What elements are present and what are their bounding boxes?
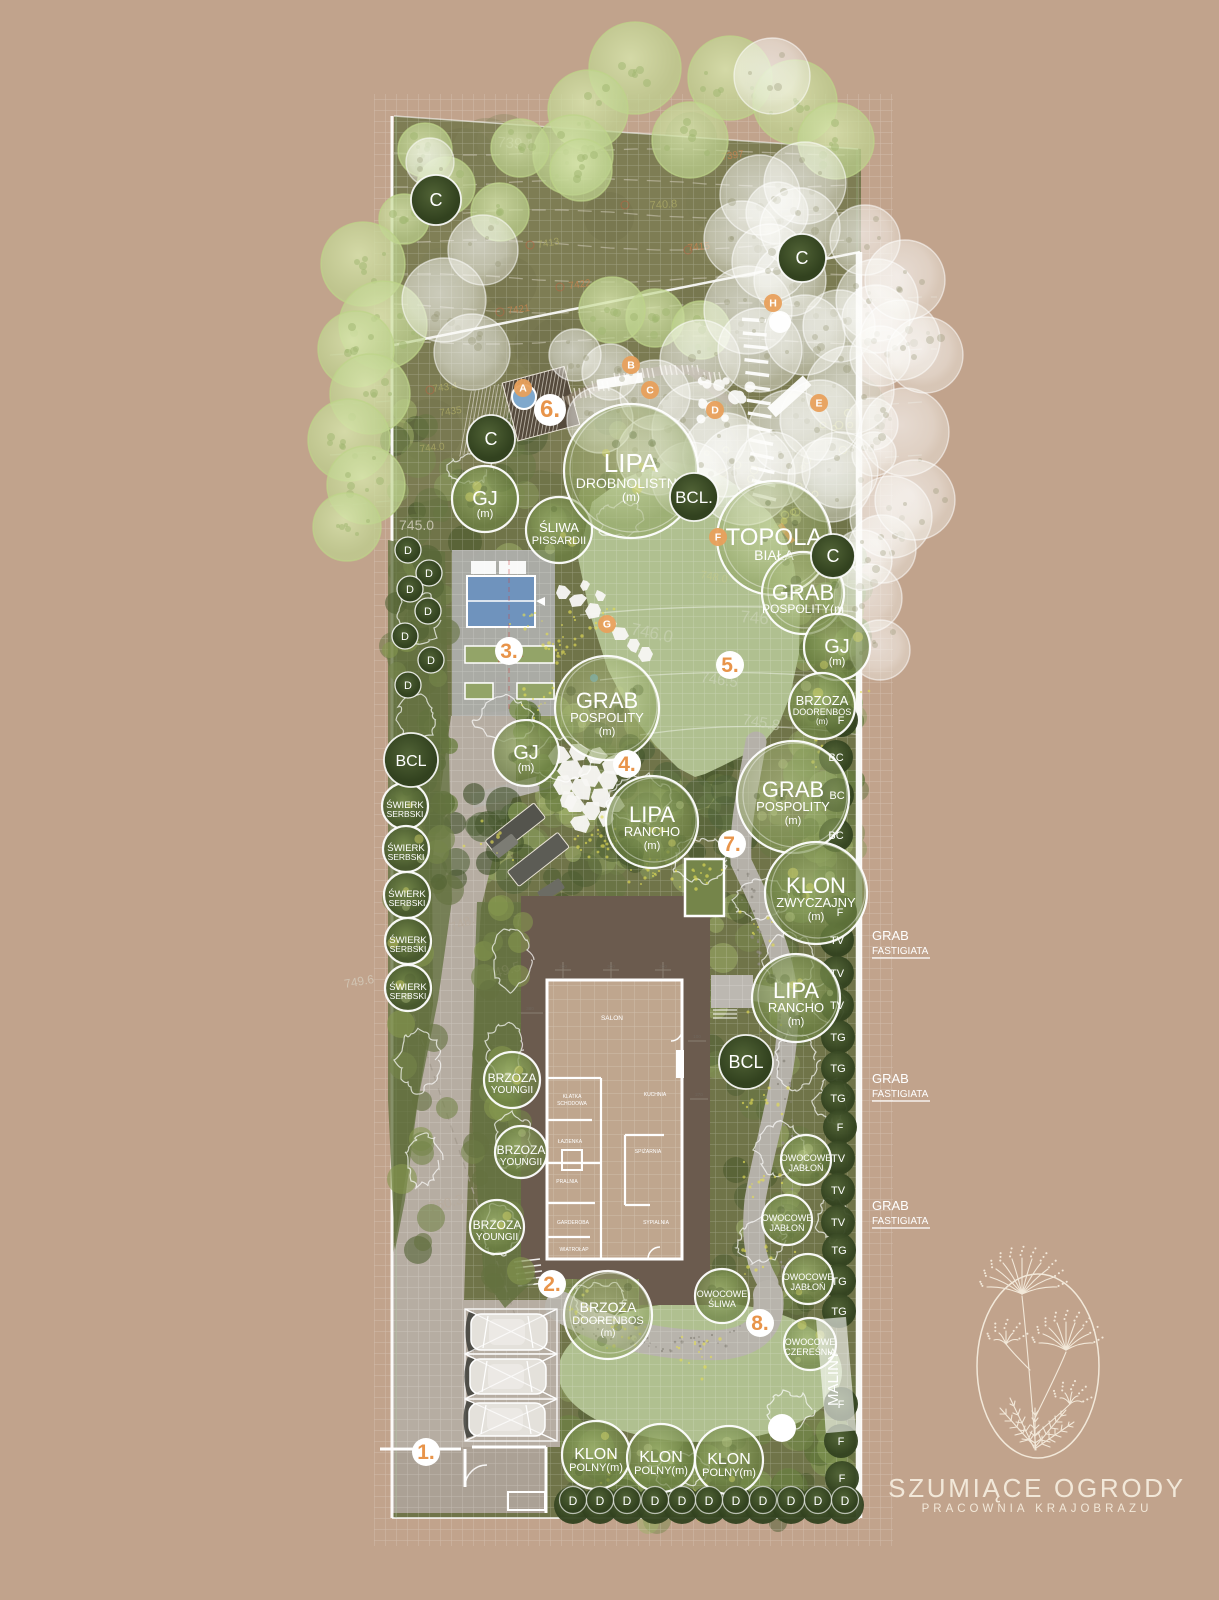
svg-text:TV: TV — [830, 968, 845, 980]
svg-text:GJ: GJ — [824, 636, 850, 658]
svg-text:PISSARDII: PISSARDII — [532, 535, 586, 547]
svg-text:(m): (m) — [518, 762, 535, 774]
svg-text:OWOCOWE: OWOCOWE — [762, 1213, 813, 1223]
svg-text:POLNY(m): POLNY(m) — [634, 1465, 688, 1477]
svg-text:D: D — [427, 655, 435, 667]
svg-text:KUCHNIA: KUCHNIA — [644, 1092, 667, 1098]
svg-text:8.: 8. — [751, 1312, 769, 1335]
svg-text:(m): (m) — [788, 1016, 805, 1028]
svg-text:GRAB: GRAB — [872, 928, 909, 943]
svg-text:F: F — [839, 1473, 846, 1485]
svg-text:7.: 7. — [723, 833, 741, 856]
svg-text:SERBSKI: SERBSKI — [387, 809, 424, 819]
svg-text:MALINY: MALINY — [825, 1350, 842, 1406]
svg-text:TG: TG — [831, 1245, 846, 1257]
svg-text:JABŁOŃ: JABŁOŃ — [769, 1223, 804, 1233]
svg-text:POSPOLITY: POSPOLITY — [756, 799, 830, 814]
svg-text:F: F — [837, 907, 844, 919]
svg-text:745.0: 745.0 — [399, 517, 434, 533]
svg-text:F: F — [837, 1122, 844, 1134]
svg-text:WIATROŁAP: WIATROŁAP — [559, 1247, 589, 1253]
svg-text:C: C — [430, 190, 443, 210]
svg-text:GRAB: GRAB — [872, 1198, 909, 1213]
svg-text:GJ: GJ — [472, 488, 498, 510]
svg-text:D: D — [705, 1494, 714, 1508]
svg-text:D: D — [401, 631, 409, 643]
svg-text:D: D — [841, 1494, 850, 1508]
svg-text:D: D — [732, 1494, 741, 1508]
svg-text:(m): (m) — [477, 508, 494, 520]
svg-text:BRZOZA: BRZOZA — [473, 1218, 522, 1232]
svg-text:YOUNGII: YOUNGII — [500, 1157, 542, 1168]
svg-text:TG: TG — [831, 1276, 846, 1288]
svg-text:BRZOZA: BRZOZA — [497, 1143, 546, 1157]
svg-text:270: 270 — [695, 1092, 703, 1097]
svg-text:C: C — [646, 385, 654, 397]
svg-text:D: D — [623, 1494, 632, 1508]
svg-text:GJ: GJ — [513, 742, 539, 764]
svg-text:POLNY(m): POLNY(m) — [702, 1467, 756, 1479]
svg-text:KLON: KLON — [707, 1451, 751, 1468]
svg-text:SERBSKI: SERBSKI — [390, 991, 427, 1001]
svg-text:D: D — [424, 606, 432, 618]
svg-text:(m): (m) — [816, 717, 828, 726]
svg-text:KLON: KLON — [574, 1446, 618, 1463]
svg-text:TV: TV — [830, 935, 845, 947]
svg-text:D: D — [425, 568, 433, 580]
svg-text:OWOCOWE: OWOCOWE — [783, 1272, 834, 1282]
svg-text:ŁAZIENKA: ŁAZIENKA — [558, 1139, 583, 1145]
svg-text:BC: BC — [829, 790, 844, 802]
svg-text:FASTIGIATA: FASTIGIATA — [872, 946, 929, 957]
svg-text:1.: 1. — [417, 1441, 435, 1464]
svg-text:(m): (m) — [599, 726, 616, 738]
svg-text:D: D — [759, 1494, 768, 1508]
svg-text:300: 300 — [659, 964, 667, 969]
svg-text:BCL: BCL — [395, 753, 426, 770]
svg-text:DROBNOLISTNA: DROBNOLISTNA — [576, 475, 687, 491]
svg-text:BRZOZA: BRZOZA — [580, 1299, 637, 1315]
svg-text:SZUMIĄCE OGRODY: SZUMIĄCE OGRODY — [888, 1473, 1186, 1503]
svg-text:OWOCOWE: OWOCOWE — [781, 1153, 832, 1163]
svg-text:SALON: SALON — [601, 1015, 623, 1022]
svg-text:300: 300 — [607, 964, 615, 969]
svg-text:SYPIALNIA: SYPIALNIA — [643, 1220, 670, 1226]
svg-text:(m): (m) — [644, 840, 661, 852]
svg-text:D: D — [814, 1494, 823, 1508]
svg-text:BCL.: BCL. — [675, 488, 713, 507]
svg-text:SERBSKI: SERBSKI — [388, 852, 425, 862]
svg-text:KLATKA: KLATKA — [563, 1094, 582, 1100]
svg-text:KLON: KLON — [639, 1449, 683, 1466]
svg-text:TG: TG — [830, 1063, 845, 1075]
svg-text:GRAB: GRAB — [872, 1071, 909, 1086]
svg-text:5.: 5. — [721, 654, 739, 677]
svg-text:FASTIGIATA: FASTIGIATA — [872, 1089, 929, 1100]
svg-text:TV: TV — [831, 1217, 846, 1229]
svg-text:TV: TV — [831, 1185, 846, 1197]
svg-text:TV: TV — [830, 1000, 845, 1012]
svg-text:BCL: BCL — [728, 1052, 763, 1072]
svg-text:(m): (m) — [622, 490, 640, 504]
svg-text:SERBSKI: SERBSKI — [389, 898, 426, 908]
svg-text:3.: 3. — [500, 640, 518, 663]
svg-text:740.8: 740.8 — [649, 198, 677, 212]
svg-text:YOUNGII: YOUNGII — [476, 1232, 518, 1243]
svg-text:RANCHO: RANCHO — [624, 824, 680, 839]
svg-text:C: C — [827, 546, 840, 566]
svg-text:ZWYCZAJNY: ZWYCZAJNY — [776, 895, 856, 910]
svg-text:6.: 6. — [540, 396, 560, 423]
svg-text:GARDEROBA: GARDEROBA — [557, 1220, 590, 1226]
svg-text:POSPOLITY: POSPOLITY — [570, 710, 644, 725]
svg-text:(m): (m) — [601, 1328, 616, 1339]
svg-text:JABŁOŃ: JABŁOŃ — [788, 1163, 823, 1173]
svg-text:TG: TG — [830, 1032, 845, 1044]
svg-text:D: D — [596, 1494, 605, 1508]
svg-text:JABŁOŃ: JABŁOŃ — [790, 1282, 825, 1292]
svg-text:ŚLIWA: ŚLIWA — [708, 1298, 736, 1309]
svg-text:C: C — [485, 429, 498, 449]
svg-text:D: D — [678, 1494, 687, 1508]
svg-text:D: D — [404, 680, 412, 692]
svg-text:SPIŻARNIA: SPIŻARNIA — [635, 1148, 662, 1155]
svg-text:BC: BC — [828, 830, 843, 842]
svg-text:(m): (m) — [808, 911, 825, 923]
svg-text:BRZOZA: BRZOZA — [796, 693, 849, 708]
svg-text:100: 100 — [693, 1034, 701, 1039]
svg-text:A: A — [519, 383, 527, 395]
svg-text:F: F — [715, 532, 722, 544]
svg-text:D: D — [787, 1494, 796, 1508]
svg-text:TV: TV — [831, 1153, 846, 1165]
svg-text:FASTIGIATA: FASTIGIATA — [872, 1216, 929, 1227]
svg-text:300: 300 — [559, 964, 567, 969]
svg-text:E: E — [815, 398, 822, 410]
svg-text:BRZOZA: BRZOZA — [488, 1071, 537, 1085]
svg-text:BC: BC — [828, 752, 843, 764]
svg-text:2.: 2. — [543, 1273, 561, 1296]
svg-text:(m): (m) — [829, 656, 846, 668]
svg-text:ŚLIWA: ŚLIWA — [539, 520, 579, 535]
svg-text:4.: 4. — [618, 753, 636, 776]
svg-text:(m): (m) — [785, 815, 802, 827]
svg-text:TG: TG — [830, 1093, 845, 1105]
svg-text:D: D — [651, 1494, 660, 1508]
svg-text:POLNY(m): POLNY(m) — [569, 1462, 623, 1474]
svg-text:OWOCOWE: OWOCOWE — [697, 1289, 748, 1299]
svg-text:G: G — [603, 619, 611, 631]
svg-text:D: D — [711, 405, 719, 417]
svg-text:TG: TG — [831, 1306, 846, 1318]
svg-text:D: D — [406, 584, 414, 596]
svg-text:H: H — [769, 298, 777, 310]
svg-text:SERBSKI: SERBSKI — [390, 944, 427, 954]
svg-text:RANCHO: RANCHO — [768, 1000, 824, 1015]
svg-text:LIPA: LIPA — [604, 448, 659, 478]
svg-text:F: F — [838, 1436, 845, 1448]
svg-text:DOORENBOS: DOORENBOS — [572, 1315, 644, 1327]
svg-text:PRACOWNIA KRAJOBRAZU: PRACOWNIA KRAJOBRAZU — [922, 1503, 1153, 1515]
svg-text:380: 380 — [526, 1006, 534, 1011]
svg-text:YOUNGII: YOUNGII — [491, 1085, 533, 1096]
svg-text:SCHODOWA: SCHODOWA — [557, 1101, 587, 1107]
svg-text:B: B — [627, 360, 635, 372]
svg-text:PRALNIA: PRALNIA — [556, 1179, 578, 1185]
svg-text:D: D — [404, 545, 412, 557]
svg-text:C: C — [796, 248, 809, 268]
svg-text:F: F — [838, 715, 845, 727]
svg-text:D: D — [569, 1494, 578, 1508]
